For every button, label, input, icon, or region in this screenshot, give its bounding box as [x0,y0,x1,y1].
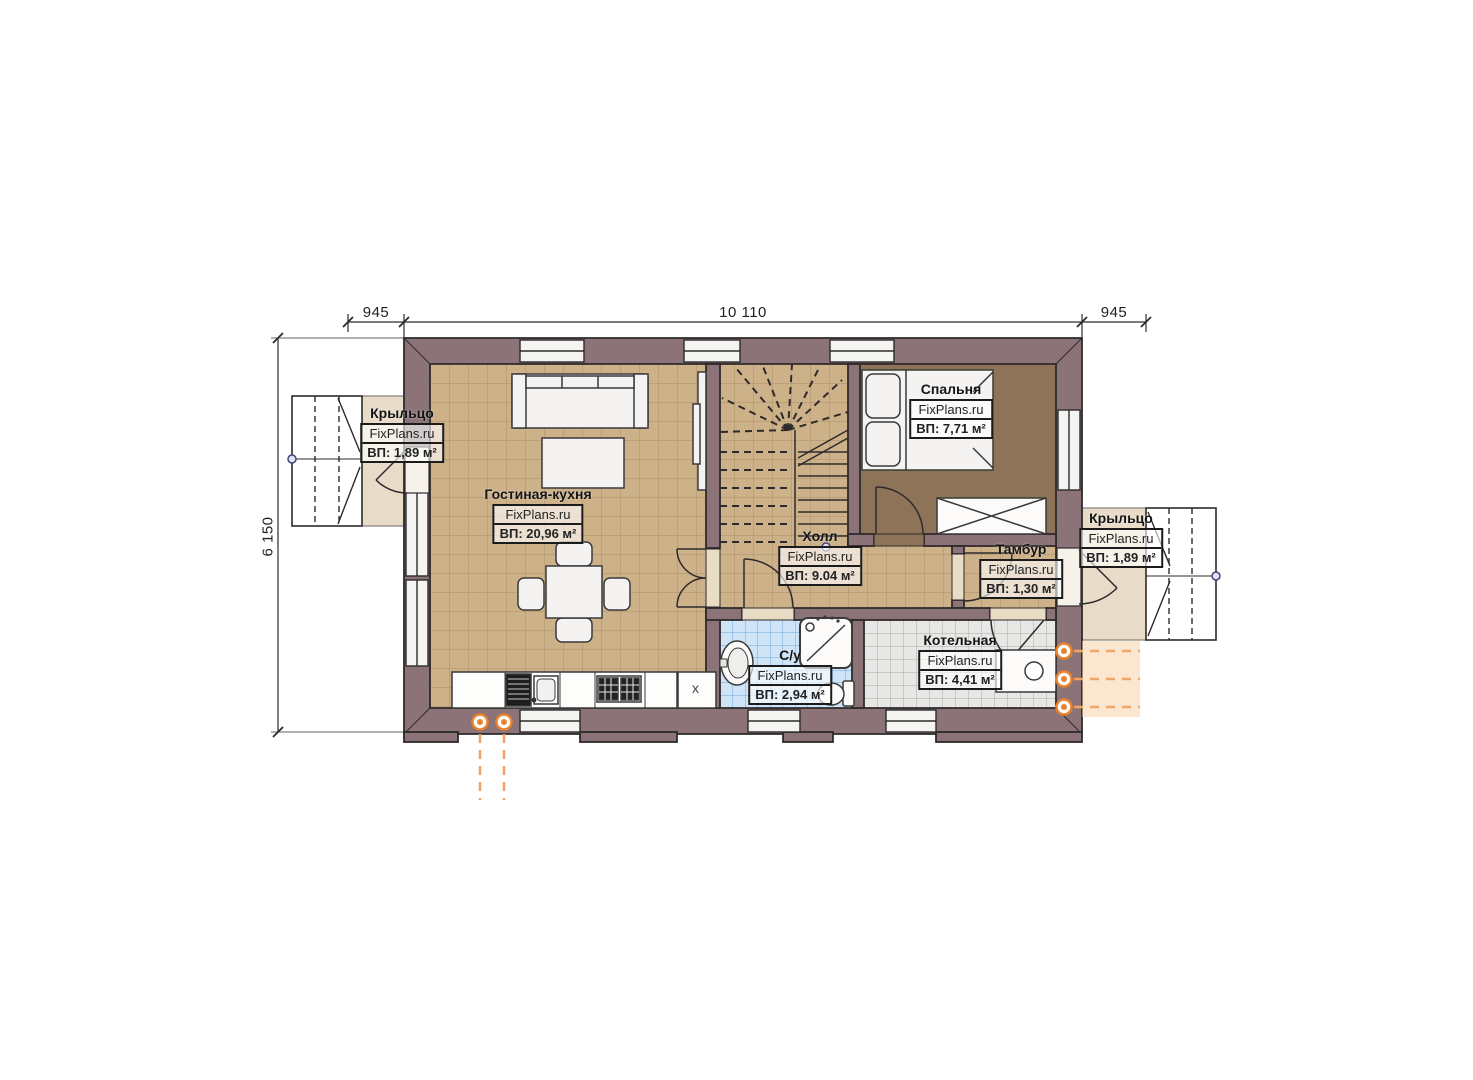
dimension-top-center: 10 110 [404,304,1082,321]
label-box: FixPlans.ru ВП: 2,94 м² [748,665,832,705]
watermark: FixPlans.ru [1081,530,1161,547]
window-left-1 [406,490,428,576]
room-label-hall: Холл FixPlans.ru ВП: 9.04 м² [778,528,862,586]
stove [597,676,641,702]
room-area: ВП: 7,71 м² [911,418,991,437]
kitchen-cabinet-mark: x [692,680,699,696]
floor-stairwell [720,364,848,546]
room-name: Спальня [909,381,993,397]
room-name: Крыльцо [360,405,444,421]
label-box: FixPlans.ru ВП: 1,89 м² [360,423,444,463]
window-top-2 [684,340,740,362]
room-area: ВП: 1,30 м² [981,578,1061,597]
wall-hall-bath-a [706,608,742,620]
room-area: ВП: 4,41 м² [920,669,1000,688]
dimension-top-left: 945 [348,304,404,321]
window-top-1 [520,340,584,362]
room-label-tambour: Тамбур FixPlans.ru ВП: 1,30 м² [979,541,1063,599]
watermark: FixPlans.ru [780,548,860,565]
label-box: FixPlans.ru ВП: 20,96 м² [493,504,584,544]
fridge [506,674,531,706]
watermark: FixPlans.ru [911,401,991,418]
wall-hall-tambour-a [952,546,964,554]
room-name: Гостиная-кухня [484,486,591,502]
room-name: Крыльцо [1079,510,1163,526]
wall-hall-bath-c [1046,608,1056,620]
room-area: ВП: 20,96 м² [495,523,582,542]
label-box: FixPlans.ru ВП: 1,30 м² [979,559,1063,599]
room-label-boiler: Котельная FixPlans.ru ВП: 4,41 м² [918,632,1002,690]
label-box: FixPlans.ru ВП: 9.04 м² [778,546,862,586]
room-area: ВП: 2,94 м² [750,684,830,703]
window-right-1 [1058,410,1080,490]
dimension-left: 6 150 [260,507,277,567]
label-box: FixPlans.ru ВП: 4,41 м² [918,650,1002,690]
watermark: FixPlans.ru [920,652,1000,669]
wall-hall-tambour-b [952,600,964,608]
boiler-unit [996,650,1056,692]
kitchen-counter [452,672,716,708]
label-box: FixPlans.ru ВП: 1,89 м² [1079,528,1163,568]
watermark: FixPlans.ru [362,425,442,442]
room-name: Котельная [918,632,1002,648]
room-label-living: Гостиная-кухня FixPlans.ru ВП: 20,96 м² [484,486,591,544]
room-area: ВП: 9.04 м² [780,565,860,584]
wall-living-stairs [706,364,720,548]
floor-plan-page: 945 10 110 945 6 150 Крыльцо FixPlans.ru… [0,0,1473,1080]
window-top-3 [830,340,894,362]
room-area: ВП: 1,89 м² [362,442,442,461]
kitchen-sink [532,676,559,704]
watermark: FixPlans.ru [750,667,830,684]
room-label-bathroom: С/у FixPlans.ru ВП: 2,94 м² [748,647,832,705]
room-label-porch-right: Крыльцо FixPlans.ru ВП: 1,89 м² [1079,510,1163,568]
room-name: С/у [748,647,832,663]
label-box: FixPlans.ru ВП: 7,71 м² [909,399,993,439]
coffee-table [542,438,624,488]
watermark: FixPlans.ru [981,561,1061,578]
window-bottom-3 [886,710,936,732]
floor-plan-canvas [0,0,1473,1080]
window-bottom-2 [748,710,800,732]
wardrobe [937,498,1046,534]
room-name: Тамбур [979,541,1063,557]
wall-stairs-bedroom [848,364,860,546]
window-bottom-1 [520,710,580,732]
room-label-bedroom: Спальня FixPlans.ru ВП: 7,71 м² [909,381,993,439]
sofa [512,374,648,428]
dimension-top-right: 945 [1082,304,1146,321]
room-name: Холл [778,528,862,544]
watermark: FixPlans.ru [495,506,582,523]
porch-stairs-left [292,396,362,526]
window-left-2 [406,580,428,666]
room-label-porch-left: Крыльцо FixPlans.ru ВП: 1,89 м² [360,405,444,463]
room-area: ВП: 1,89 м² [1081,547,1161,566]
